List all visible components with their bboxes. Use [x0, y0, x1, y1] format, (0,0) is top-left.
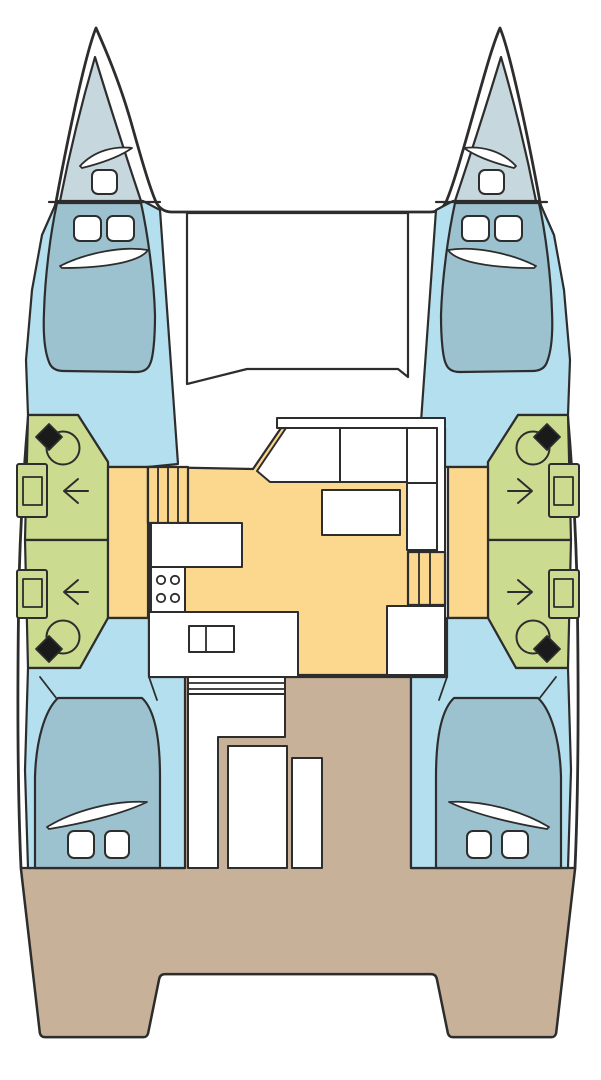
port-aft-hatch-2-icon — [105, 831, 129, 858]
starboard-aft-module — [387, 606, 445, 675]
settee-seat-right — [407, 483, 437, 550]
port-forward-hatch-2-icon — [107, 216, 134, 241]
port-aft-hatch-1-icon — [68, 831, 94, 858]
foredeck-trampoline — [187, 213, 408, 384]
port-forward-hatch-1-icon — [74, 216, 101, 241]
port-companionway-stairs — [148, 467, 188, 523]
settee-seat-middle — [340, 428, 407, 482]
stove-burner-icon — [157, 576, 165, 584]
stove-burner-icon — [171, 576, 179, 584]
door-panel — [228, 746, 287, 868]
starboard-aft-hatch-1-icon — [467, 831, 491, 858]
port-hull — [17, 57, 185, 868]
catamaran-floor-plan — [0, 0, 601, 1080]
port-forward-sink-basin-icon — [23, 477, 42, 505]
port-aft-berth — [35, 698, 160, 868]
galley-upper-counter — [151, 523, 242, 567]
galley-double-sink-icon — [189, 626, 234, 652]
settee-seat-corner — [407, 428, 437, 483]
starboard-forward-hatch-1-icon — [462, 216, 489, 241]
dinette-table — [322, 490, 400, 535]
port-hull-corridor — [108, 467, 148, 618]
starboard-aft-berth — [436, 698, 561, 868]
starboard-hull-corridor — [448, 467, 488, 618]
starboard-forward-sink-basin-icon — [554, 477, 573, 505]
starboard-aft-sink-basin-icon — [554, 579, 573, 607]
starboard-companionway-stairs — [408, 552, 445, 605]
stove-burner-icon — [157, 594, 165, 602]
galley-stove — [151, 567, 185, 612]
floor-plan-canvas — [0, 0, 601, 1080]
window-panel — [292, 758, 322, 868]
port-bow-hatch-icon — [92, 170, 117, 194]
starboard-forward-hatch-2-icon — [495, 216, 522, 241]
stove-burner-icon — [171, 594, 179, 602]
starboard-aft-hatch-2-icon — [502, 831, 528, 858]
port-aft-sink-basin-icon — [23, 579, 42, 607]
starboard-bow-hatch-icon — [479, 170, 504, 194]
lined-sideboard — [188, 677, 285, 694]
